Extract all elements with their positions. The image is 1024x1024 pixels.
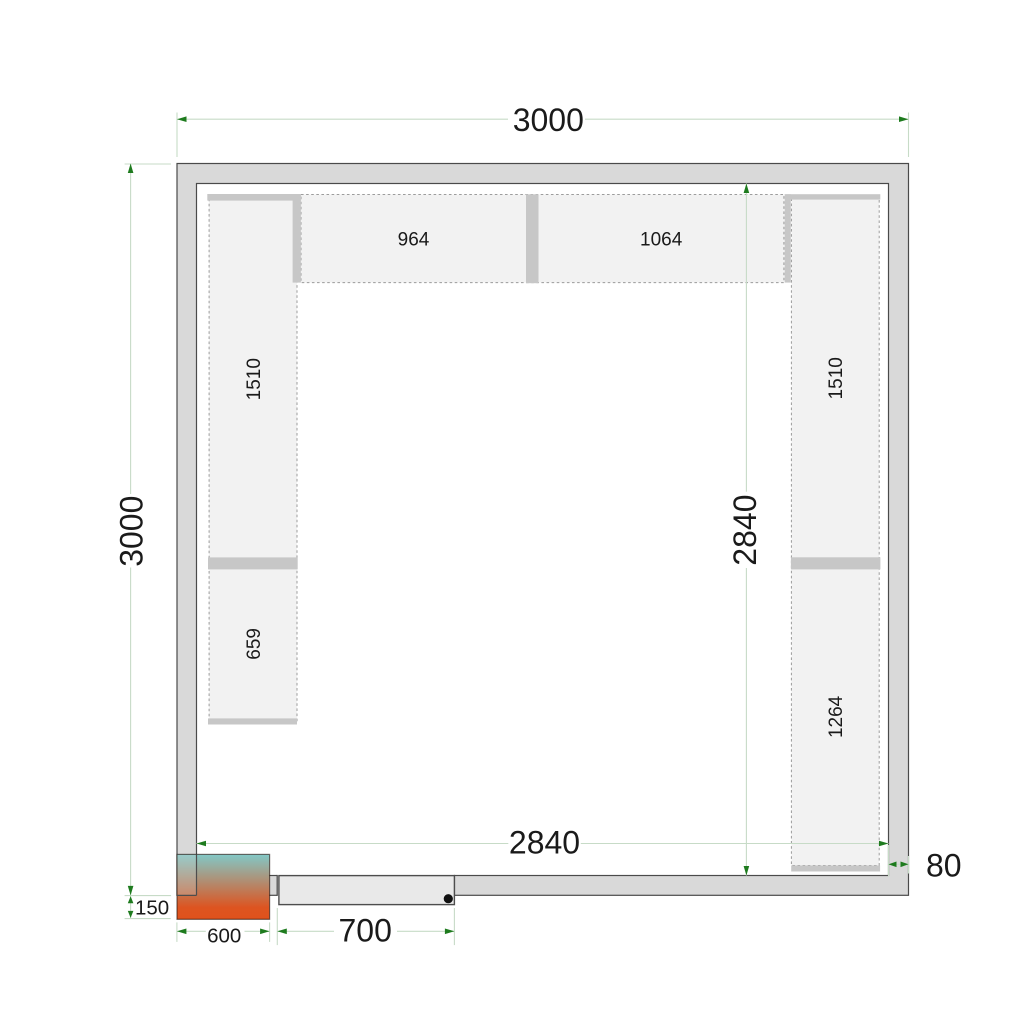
svg-text:1510: 1510 [244,358,265,400]
svg-text:964: 964 [398,229,430,250]
svg-text:1510: 1510 [826,357,847,399]
svg-text:1064: 1064 [640,229,683,250]
svg-text:659: 659 [244,628,265,660]
svg-text:3000: 3000 [513,102,584,138]
svg-text:3000: 3000 [114,496,150,567]
svg-text:2840: 2840 [727,495,763,566]
svg-text:80: 80 [926,847,962,883]
svg-text:1264: 1264 [826,695,847,738]
svg-text:600: 600 [207,924,241,947]
svg-text:700: 700 [339,913,392,949]
svg-text:2840: 2840 [509,825,580,861]
svg-text:150: 150 [135,896,169,919]
